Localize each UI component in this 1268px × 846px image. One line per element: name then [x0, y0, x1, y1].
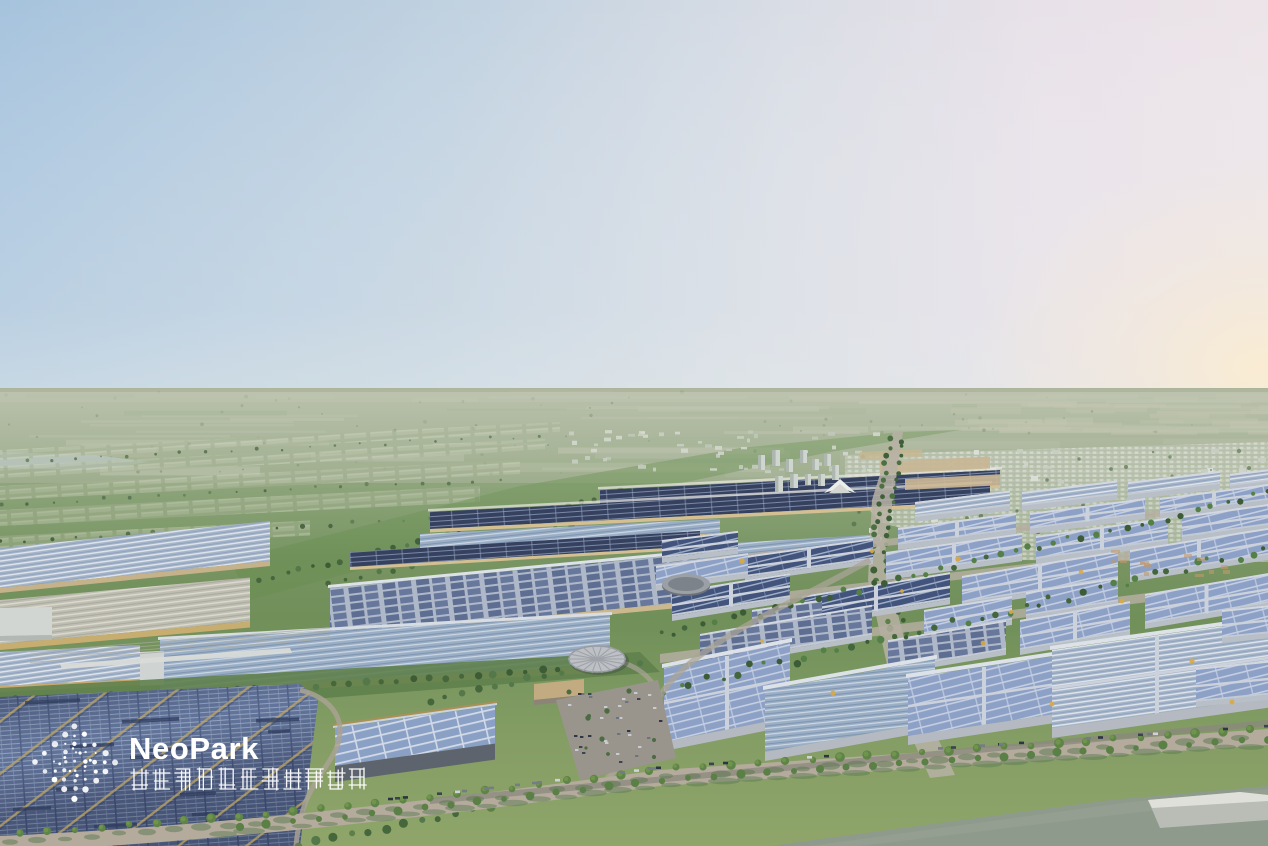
svg-text:NeoPark: NeoPark — [129, 731, 259, 766]
